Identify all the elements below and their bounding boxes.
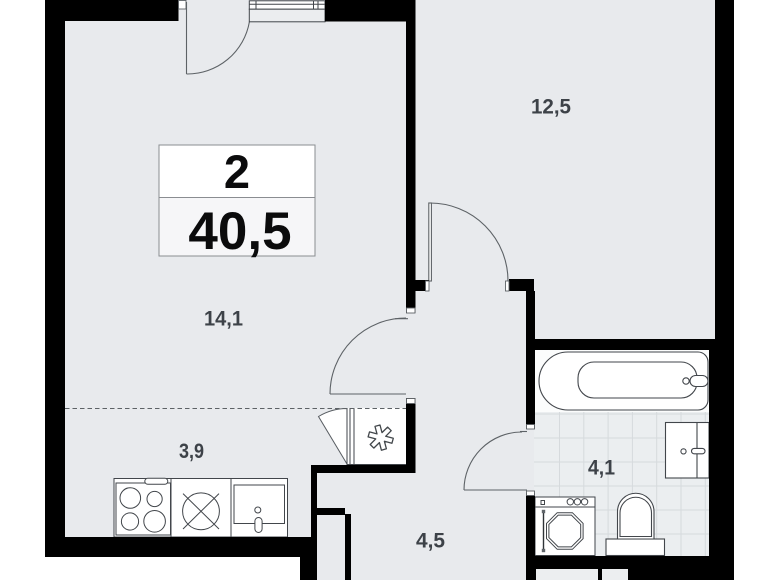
svg-text:40,5: 40,5 bbox=[188, 202, 291, 261]
svg-text:2: 2 bbox=[224, 145, 250, 198]
svg-text:4,5: 4,5 bbox=[416, 529, 445, 553]
svg-text:14,1: 14,1 bbox=[204, 307, 243, 331]
svg-text:3,9: 3,9 bbox=[179, 439, 204, 463]
svg-text:12,5: 12,5 bbox=[531, 95, 571, 119]
svg-text:4,1: 4,1 bbox=[588, 456, 615, 480]
